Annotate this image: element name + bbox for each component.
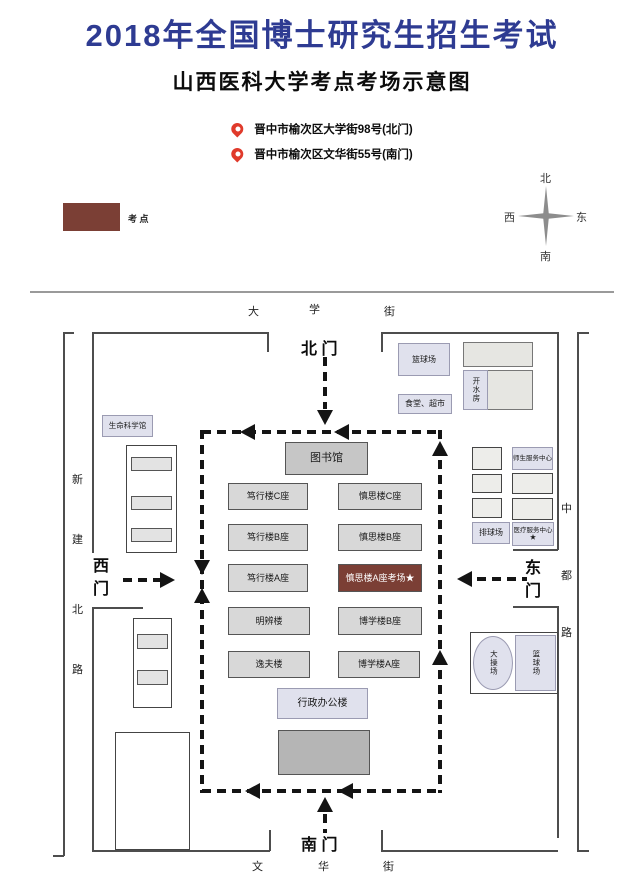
wall-west-gate-jog — [92, 607, 143, 609]
road-left-bottom-tick — [53, 855, 64, 857]
road-left-char: 路 — [72, 661, 83, 677]
wall-north-gate-right-post — [381, 332, 383, 352]
road-right-bottom-tick — [577, 850, 589, 852]
admin-office-building: 行政办公楼 — [277, 688, 368, 719]
compass-south-label: 南 — [540, 248, 551, 264]
west-building-2-unit — [137, 634, 168, 649]
route-arrowhead-west — [245, 783, 260, 799]
road-right-top-tick — [577, 332, 589, 334]
east-service-blank-box — [472, 474, 502, 493]
street-bottom-char: 华 — [318, 858, 329, 873]
address-block: 晋中市榆次区大学街98号(北门) 晋中市榆次区文华街55号(南门) — [231, 116, 412, 166]
west-building-1-unit — [131, 457, 172, 471]
central-unnamed-building — [278, 730, 370, 775]
west-gate-label: 西门 — [91, 555, 111, 601]
life-science-hall: 生命科学馆 — [102, 415, 153, 437]
south-gate-entry-dash — [323, 814, 327, 833]
west-building-1-unit — [131, 528, 172, 542]
east-service-blank-box — [472, 447, 502, 470]
wall-south-right — [381, 850, 558, 852]
north-gate-entry-dash — [323, 357, 327, 409]
southwest-compound-outline — [115, 732, 190, 850]
hot-water-room: 开水房 — [463, 370, 488, 410]
route-arrowhead-north — [432, 650, 448, 665]
location-pin-icon — [229, 145, 246, 162]
wall-north-left — [92, 332, 268, 334]
route-arrowhead-south — [194, 560, 210, 575]
legend-exam-site-swatch — [63, 203, 120, 231]
address-row-south: 晋中市榆次区文华街55号(南门) — [231, 141, 412, 166]
road-right-char: 路 — [561, 624, 572, 640]
east-gate-entry-arrowhead — [457, 571, 472, 587]
compass-north-label: 北 — [540, 170, 551, 186]
street-bottom-char: 文 — [252, 858, 263, 873]
legend-exam-site-label: 考 点 — [128, 212, 149, 225]
street-bottom-char: 街 — [383, 858, 394, 873]
west-building-block-2 — [133, 618, 172, 708]
south-gate-label: 南 门 — [301, 831, 337, 855]
address-south: 晋中市榆次区文华街55号(南门) — [254, 146, 412, 162]
road-right-edge-line — [577, 332, 579, 852]
main-playground: 大操场 — [473, 636, 513, 690]
route-left-line — [200, 430, 204, 793]
duxing-building-a: 笃行楼A座 — [228, 564, 308, 592]
header-separator-line — [30, 291, 614, 293]
wall-west-lower — [92, 607, 94, 851]
route-arrowhead-north — [194, 588, 210, 603]
compass-rose: 北 南 西 东 — [504, 170, 588, 262]
wall-east-gate-bottom-stub — [513, 606, 558, 608]
road-left-edge-line — [63, 332, 65, 856]
route-arrowhead-west — [338, 783, 353, 799]
street-top-char: 学 — [309, 301, 320, 317]
north-gate-entry-arrowhead — [317, 410, 333, 425]
basketball-court-north: 篮球场 — [398, 343, 450, 376]
staff-student-service-center: 师生服务中心 — [512, 447, 553, 470]
wall-north-right — [381, 332, 558, 334]
address-row-north: 晋中市榆次区大学街98号(北门) — [231, 116, 412, 141]
wall-west-upper — [92, 332, 94, 553]
compass-east-label: 东 — [576, 209, 587, 225]
east-service-blank-box — [472, 498, 502, 518]
boxue-building-a: 博学楼A座 — [338, 651, 420, 678]
route-right-line — [438, 430, 442, 793]
compass-west-label: 西 — [504, 209, 515, 225]
route-arrowhead-west — [334, 424, 349, 440]
boxue-building-b: 博学楼B座 — [338, 607, 422, 635]
duxing-building-b: 笃行楼B座 — [228, 524, 308, 551]
shensi-building-b: 慎思楼B座 — [338, 524, 422, 551]
page-title: 2018年全国博士研究生招生考试 — [0, 10, 644, 55]
wall-east-upper — [557, 332, 559, 550]
west-gate-entry-dash — [123, 578, 160, 582]
address-north: 晋中市榆次区大学街98号(北门) — [254, 121, 412, 137]
volleyball-court: 排球场 — [472, 522, 510, 544]
wall-east-gate-top-stub — [513, 549, 558, 551]
street-top-char: 大 — [248, 303, 259, 319]
shensi-building-c: 慎思楼C座 — [338, 483, 422, 510]
duxing-building-c: 笃行楼C座 — [228, 483, 308, 510]
road-right-char: 都 — [561, 567, 572, 583]
route-arrowhead-north — [432, 441, 448, 456]
route-top-line — [202, 430, 440, 434]
east-service-blank-box — [512, 498, 553, 520]
north-gate-label: 北 门 — [301, 335, 337, 359]
road-right-char: 中 — [561, 500, 572, 516]
location-pin-icon — [229, 120, 246, 137]
exam-room-shensi-building-a: 慎思楼A座考场★ — [338, 564, 422, 592]
library-building: 图书馆 — [285, 442, 368, 475]
road-left-char: 建 — [72, 531, 83, 547]
mingbian-building: 明辨楼 — [228, 607, 310, 635]
west-gate-entry-arrowhead — [160, 572, 175, 588]
east-gate-entry-dash — [477, 577, 527, 581]
wall-south-gate-left-post — [269, 830, 271, 851]
wall-north-gate-left-post — [267, 332, 269, 352]
route-arrowhead-west — [240, 424, 255, 440]
street-top-char: 街 — [384, 303, 395, 319]
medical-service-center: 医疗服务中心★ — [512, 522, 554, 546]
road-left-char: 北 — [72, 601, 83, 617]
west-building-1-unit — [131, 496, 172, 510]
wall-south-left — [92, 850, 270, 852]
page-subtitle: 山西医科大学考点考场示意图 — [0, 66, 644, 96]
exam-site-map-page: 2018年全国博士研究生招生考试 山西医科大学考点考场示意图 晋中市榆次区大学街… — [0, 0, 644, 873]
compass-star-icon — [518, 184, 574, 248]
route-bottom-line — [202, 789, 440, 793]
canteen-supermarket: 食堂、超市 — [398, 394, 452, 414]
northeast-unnamed-building — [463, 342, 533, 367]
south-gate-entry-arrowhead — [317, 797, 333, 812]
road-left-top-tick — [63, 332, 74, 334]
west-building-2-unit — [137, 670, 168, 685]
basketball-court-east: 篮球场 — [515, 635, 556, 691]
yifu-building: 逸夫楼 — [228, 651, 310, 678]
road-left-char: 新 — [72, 471, 83, 487]
wall-south-gate-right-post — [381, 830, 383, 851]
east-service-blank-box — [512, 473, 553, 494]
